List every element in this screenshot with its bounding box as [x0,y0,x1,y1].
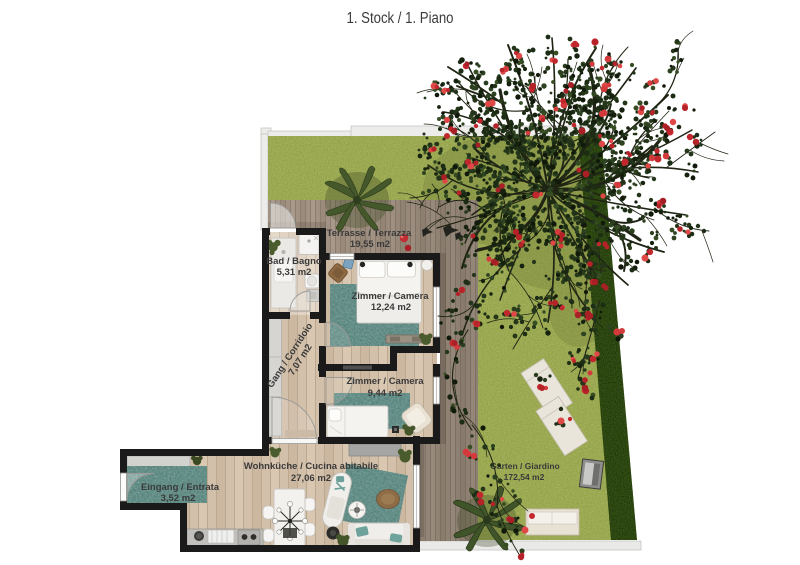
svg-text:9,44 m2: 9,44 m2 [368,388,403,399]
svg-text:Bad / Bagno: Bad / Bagno [266,256,322,267]
svg-text:Zimmer / Camera: Zimmer / Camera [351,291,429,302]
svg-text:Zimmer / Camera: Zimmer / Camera [346,376,424,387]
svg-text:172,54 m2: 172,54 m2 [504,472,545,482]
svg-text:1. Stock / 1. Piano: 1. Stock / 1. Piano [347,10,454,27]
svg-text:Garten / Giardino: Garten / Giardino [490,461,559,471]
svg-text:27,06 m2: 27,06 m2 [291,473,331,484]
svg-text:5,31 m2: 5,31 m2 [277,267,312,278]
svg-text:19,55 m2: 19,55 m2 [350,239,390,250]
svg-text:Eingang / Entrata: Eingang / Entrata [141,482,220,493]
svg-text:3,52 m2: 3,52 m2 [161,493,196,504]
svg-text:Wohnküche / Cucina abitabile: Wohnküche / Cucina abitabile [244,461,378,472]
svg-text:Terrasse / Terrazza: Terrasse / Terrazza [327,228,412,239]
svg-text:12,24 m2: 12,24 m2 [371,302,411,313]
